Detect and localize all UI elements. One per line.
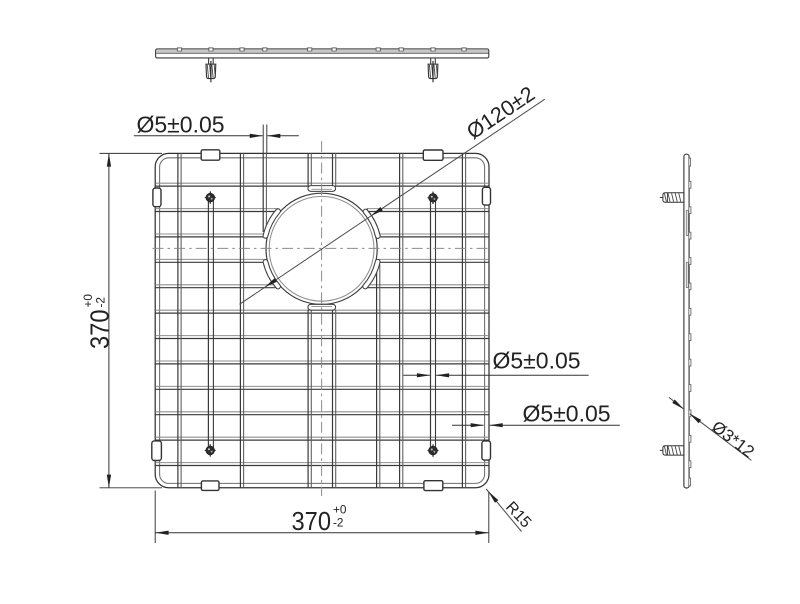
svg-text:-2: -2 [94,297,108,308]
svg-text:370: 370 [85,310,115,350]
svg-text:-2: -2 [333,516,344,530]
svg-text:370: 370 [292,506,332,536]
svg-text:+0: +0 [333,503,347,517]
svg-text:Ø5±0.05: Ø5±0.05 [137,112,225,138]
svg-text:Ø5±0.05: Ø5±0.05 [523,401,611,427]
svg-text:Ø5±0.05: Ø5±0.05 [493,348,581,374]
